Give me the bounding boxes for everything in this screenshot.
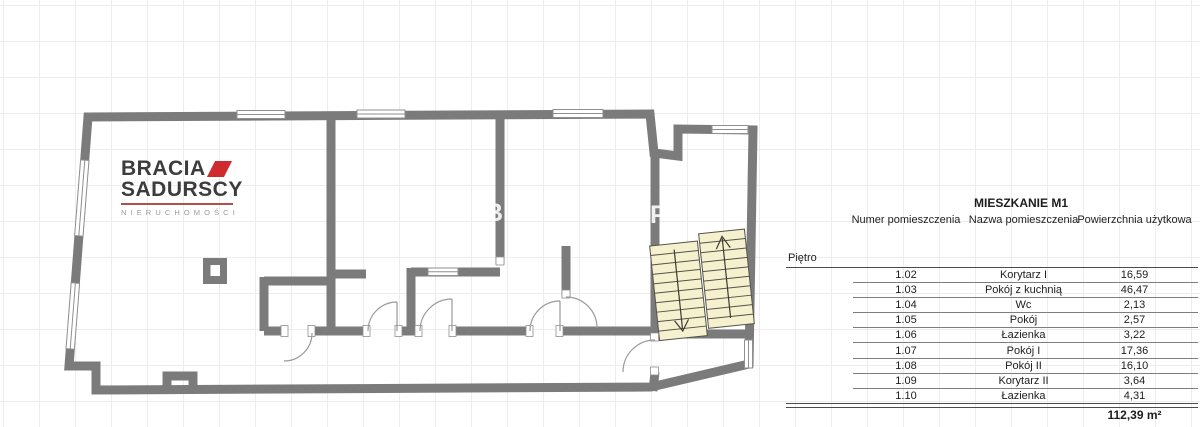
table-row: 1.08Pokój II16,10 bbox=[786, 359, 1198, 374]
agency-logo: BRACIA SADURSCY NIERUCHOMOŚCI bbox=[121, 158, 243, 217]
table-row: 1.05Pokój2,57 bbox=[786, 313, 1198, 328]
door-swing bbox=[420, 299, 452, 331]
pillar bbox=[203, 258, 227, 284]
table-cell: 3,22 bbox=[1071, 329, 1198, 341]
door-swing bbox=[566, 297, 597, 328]
table-rule bbox=[786, 403, 1198, 404]
column-header-area: Powierzchnia użytkowa bbox=[1071, 214, 1198, 227]
screenshot: B P BRACIA SADURSCY NIERUCHOMOŚCI MIESZK… bbox=[0, 0, 1200, 427]
door-swing bbox=[284, 333, 312, 361]
table-row: 1.09Korytarz II3,64 bbox=[786, 374, 1198, 389]
logo-line1: BRACIA bbox=[121, 158, 206, 179]
watermark-letter: P bbox=[650, 201, 667, 230]
table-title: MIESZKANIE M1 bbox=[946, 196, 1096, 210]
table-cell: 46,47 bbox=[1071, 284, 1198, 296]
staircase bbox=[649, 229, 755, 340]
table-row: 1.07Pokój I17,36 bbox=[786, 344, 1198, 359]
table-cell: 16,10 bbox=[1071, 360, 1198, 372]
table-row: 1.06Łazienka3,22 bbox=[786, 328, 1198, 343]
table-cell: 17,36 bbox=[1071, 345, 1198, 357]
logo-subtitle: NIERUCHOMOŚCI bbox=[121, 209, 243, 217]
window bbox=[237, 111, 285, 119]
logo-roof-icon bbox=[207, 161, 232, 177]
floor-label: Piętro bbox=[788, 252, 817, 264]
table-cell: 4,31 bbox=[1071, 390, 1198, 402]
logo-line2: SADURSCY bbox=[121, 179, 243, 200]
window bbox=[553, 110, 603, 118]
table-row: 1.02Korytarz I16,59 bbox=[786, 268, 1198, 283]
window bbox=[75, 160, 89, 236]
window bbox=[66, 283, 80, 349]
table-cell: 2,57 bbox=[1071, 314, 1198, 326]
table-row: 1.10Łazienka4,31 bbox=[786, 389, 1198, 404]
window bbox=[712, 126, 748, 134]
door-swing bbox=[368, 302, 397, 331]
door-swing bbox=[530, 301, 560, 331]
table-cell: 16,59 bbox=[1071, 269, 1198, 281]
table-row: 1.04Wc2,13 bbox=[786, 298, 1198, 313]
watermark-letter: B bbox=[485, 199, 503, 228]
window bbox=[745, 340, 753, 368]
table-row: 1.03Pokój z kuchnią46,47 bbox=[786, 283, 1198, 298]
pass-through bbox=[428, 268, 458, 276]
logo-divider bbox=[121, 203, 233, 205]
window bbox=[357, 110, 405, 118]
total-area: 112,39 m² bbox=[1071, 408, 1198, 422]
table-cell: 2,13 bbox=[1071, 299, 1198, 311]
table-cell: 3,64 bbox=[1071, 375, 1198, 387]
